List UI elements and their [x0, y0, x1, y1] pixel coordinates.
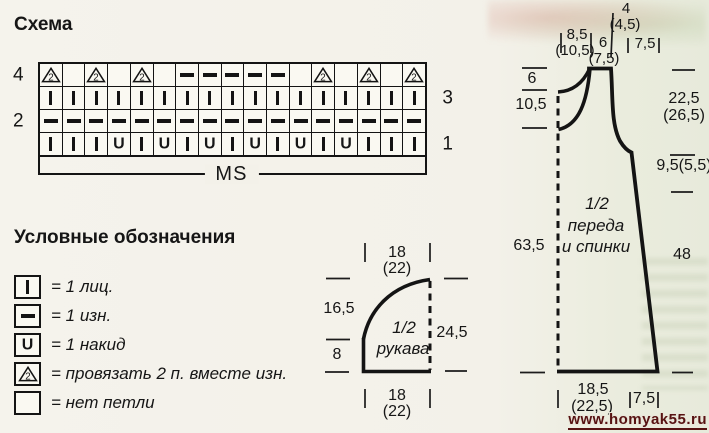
sleeve-piece-label: 1/2	[392, 319, 416, 336]
chart-cell-p	[380, 110, 403, 132]
knit-stitch-symbol	[231, 137, 234, 151]
purl-stitch-symbol	[316, 119, 330, 122]
purl-stitch-symbol	[225, 73, 239, 76]
body-armhole-depth-label: 22,5	[668, 91, 699, 107]
chart-cell-k	[357, 87, 380, 109]
svg-text:2: 2	[25, 371, 30, 382]
svg-text:2: 2	[411, 72, 416, 83]
yarn-over-symbol: U	[295, 137, 307, 153]
chart-cell-k	[153, 87, 176, 109]
chart-cell-p	[84, 110, 107, 132]
chart-cell-yo: U	[289, 133, 312, 155]
sleeve-cap-height-label: 16,5	[323, 301, 354, 317]
knit-stitch-symbol	[367, 137, 370, 151]
chart-cell-k2tog: 2	[40, 64, 62, 86]
body-front-neck-extra-label: 10,5	[515, 97, 546, 113]
chart-cell-p	[289, 110, 312, 132]
body-front-neck-curve	[559, 69, 591, 130]
sleeve-bottom-width-alt-label: (22)	[383, 404, 411, 420]
sleeve-top-width-label: 18	[388, 245, 406, 261]
chart-cell-k	[266, 133, 289, 155]
chart-cell-p	[175, 110, 198, 132]
page: Схема 222222432UUUUUU1 MS Условные обозн…	[0, 0, 709, 433]
chart-cell-k2tog: 2	[357, 64, 380, 86]
purl-stitch-symbol	[44, 119, 58, 122]
purl-stitch-symbol	[362, 119, 376, 122]
yarn-over-symbol: U	[249, 137, 261, 153]
body-flare-label: 7,5	[633, 391, 655, 407]
chart-cell-k	[289, 87, 312, 109]
sleeve-top-width-alt-label: (22)	[383, 261, 411, 277]
chart-cell-p	[266, 64, 289, 86]
legend-item-text: = 1 накид	[51, 335, 126, 355]
chart-cell-p	[153, 110, 176, 132]
svg-text:2: 2	[94, 72, 99, 83]
chart-cell-k	[198, 87, 221, 109]
chart-cell-p	[311, 110, 334, 132]
knit-stitch-symbol	[299, 91, 302, 105]
chart-cell-k	[243, 87, 266, 109]
body-armhole-depth-alt-label: (26,5)	[663, 108, 705, 124]
legend-item-text: = 1 изн.	[51, 306, 111, 326]
knit-stitch-symbol	[49, 137, 52, 151]
svg-text:2: 2	[139, 72, 144, 83]
knit-stitch-symbol	[186, 91, 189, 105]
body-length-label: 63,5	[513, 238, 544, 254]
chart-row: 2222224	[40, 64, 425, 86]
sleeve-center-length-label: 24,5	[436, 325, 467, 341]
knit-stitch-symbol	[322, 137, 325, 151]
legend-symbol-box-p	[14, 304, 41, 328]
purl-two-together-symbol: 2	[86, 67, 106, 83]
chart-cell-empty	[334, 64, 357, 86]
knit-stitch-symbol	[26, 280, 29, 294]
chart-cell-k	[62, 133, 85, 155]
purl-stitch-symbol	[384, 119, 398, 122]
purl-stitch-symbol	[225, 119, 239, 122]
chart-cell-p	[198, 110, 221, 132]
chart-cell-empty	[289, 64, 312, 86]
purl-stitch-symbol	[67, 119, 81, 122]
yarn-over-symbol: U	[204, 137, 216, 153]
chart-cell-p	[221, 64, 244, 86]
knit-stitch-symbol	[95, 91, 98, 105]
knit-stitch-symbol	[231, 91, 234, 105]
chart-cell-k	[334, 87, 357, 109]
knit-stitch-symbol	[208, 91, 211, 105]
knit-stitch-symbol	[413, 137, 416, 151]
sleeve-bottom-width-label: 18	[388, 388, 406, 404]
knit-stitch-symbol	[163, 91, 166, 105]
knit-stitch-symbol	[276, 91, 279, 105]
purl-stitch-symbol	[180, 73, 194, 76]
chart-cell-empty	[107, 64, 130, 86]
chart-cell-p	[357, 110, 380, 132]
knit-stitch-symbol	[344, 91, 347, 105]
knit-stitch-symbol	[95, 137, 98, 151]
knit-stitch-symbol	[72, 137, 75, 151]
sleeve-piece-label: рукава	[377, 340, 430, 357]
purl-stitch-symbol	[157, 119, 171, 122]
chart-row-number: 2	[13, 112, 24, 131]
chart-repeat-bracket: MS	[38, 157, 427, 175]
legend-item: = нет петли	[14, 392, 287, 414]
purl-two-together-symbol: 2	[18, 366, 38, 382]
knit-stitch-symbol	[140, 137, 143, 151]
chart-cell-yo: U	[243, 133, 266, 155]
chart-cell-empty	[62, 64, 85, 86]
knit-stitch-symbol	[413, 91, 416, 105]
purl-two-together-symbol: 2	[41, 67, 61, 83]
purl-stitch-symbol	[89, 119, 103, 122]
purl-stitch-symbol	[294, 119, 308, 122]
chart-cell-empty	[380, 64, 403, 86]
chart-cell-k	[357, 133, 380, 155]
chart-cell-k	[311, 87, 334, 109]
chart-cell-k	[175, 87, 198, 109]
chart-cell-k	[40, 87, 62, 109]
legend-item: 2= провязать 2 п. вместе изн.	[14, 363, 287, 385]
purl-stitch-symbol	[271, 119, 285, 122]
body-side-seam-label: 48	[673, 247, 691, 263]
knit-stitch-symbol	[117, 91, 120, 105]
purl-stitch-symbol	[203, 73, 217, 76]
knit-stitch-symbol	[367, 91, 370, 105]
legend-item-text: = нет петли	[51, 393, 155, 413]
purl-two-together-symbol: 2	[404, 67, 424, 83]
chart-title: Схема	[14, 15, 73, 34]
chart-cell-k	[311, 133, 334, 155]
body-strap-width-alt-label: (7,5)	[589, 51, 620, 66]
legend-symbol-box-k	[14, 275, 41, 299]
sleeve-cuff-height-label: 8	[333, 347, 342, 363]
knit-stitch-symbol	[322, 91, 325, 105]
chart-cell-yo: U	[198, 133, 221, 155]
knit-stitch-symbol	[390, 91, 393, 105]
legend-item-text: = 1 лиц.	[51, 277, 113, 297]
chart-cell-yo: U	[107, 133, 130, 155]
chart-row: 3	[40, 86, 425, 109]
knit-stitch-symbol	[390, 137, 393, 151]
chart-row: UUUUUU1	[40, 132, 425, 155]
chart-cell-k	[107, 87, 130, 109]
chart-cell-p	[130, 110, 153, 132]
chart-cell-k	[84, 87, 107, 109]
svg-text:2: 2	[48, 72, 53, 83]
print-showthrough-smudge	[488, 0, 706, 44]
legend-item-text: = провязать 2 п. вместе изн.	[51, 364, 287, 384]
body-piece-label: и спинки	[562, 238, 630, 255]
purl-stitch-symbol	[112, 119, 126, 122]
purl-stitch-symbol	[135, 119, 149, 122]
chart-cell-k	[266, 87, 289, 109]
chart-cell-p	[62, 110, 85, 132]
chart-cell-p	[40, 110, 62, 132]
chart-cell-yo: U	[334, 133, 357, 155]
purl-stitch-symbol	[180, 119, 194, 122]
chart-repeat-label: MS	[204, 164, 258, 184]
purl-stitch-symbol	[248, 119, 262, 122]
body-back-neck-depth-label: 6	[528, 71, 537, 87]
chart-cell-empty	[153, 64, 176, 86]
chart-cell-k2tog: 2	[311, 64, 334, 86]
chart-cell-p	[243, 110, 266, 132]
purl-stitch-symbol	[271, 73, 285, 76]
chart-cell-k	[40, 133, 62, 155]
knit-stitch-symbol	[49, 91, 52, 105]
chart-cell-p	[107, 110, 130, 132]
chart-row-number: 1	[442, 135, 453, 154]
chart-cell-p	[334, 110, 357, 132]
svg-text:2: 2	[366, 72, 371, 83]
chart-cell-p	[243, 64, 266, 86]
site-watermark: www.homyak55.ru	[568, 411, 707, 430]
body-underarm-label: 9,5(5,5)	[656, 158, 709, 174]
chart-cell-k2tog: 2	[130, 64, 153, 86]
chart-row-number: 3	[442, 89, 453, 108]
purl-two-together-symbol: 2	[359, 67, 379, 83]
chart-cell-k	[221, 87, 244, 109]
body-piece-label: 1/2	[585, 195, 609, 212]
legend-item: = 1 изн.	[14, 305, 287, 327]
chart-cell-k	[221, 133, 244, 155]
chart-cell-k	[62, 87, 85, 109]
body-neck-width-label: 8,5	[567, 27, 588, 42]
body-strap-width-label: 6	[599, 35, 607, 50]
yarn-over-symbol: U	[113, 137, 125, 153]
chart-cell-k	[130, 133, 153, 155]
chart-cell-p	[198, 64, 221, 86]
legend-item: = 1 лиц.	[14, 276, 287, 298]
body-shoulder-label: 4	[622, 1, 630, 16]
purl-stitch-symbol	[203, 119, 217, 122]
body-shoulder-alt-label: (4,5)	[610, 17, 641, 32]
chart-cell-k	[130, 87, 153, 109]
purl-two-together-symbol: 2	[132, 67, 152, 83]
print-showthrough-smudge	[642, 258, 708, 390]
knit-stitch-symbol	[140, 91, 143, 105]
purl-stitch-symbol	[407, 119, 421, 122]
yarn-over-symbol: U	[22, 338, 34, 354]
chart-cell-p	[266, 110, 289, 132]
knit-stitch-symbol	[72, 91, 75, 105]
chart-cell-yo: U	[153, 133, 176, 155]
purl-stitch-symbol	[339, 119, 353, 122]
yarn-over-symbol: U	[159, 137, 171, 153]
purl-stitch-symbol	[21, 314, 35, 317]
body-armhole-inset-label: 7,5	[635, 36, 656, 51]
body-piece-label: переда	[568, 217, 624, 234]
legend-item: U= 1 накид	[14, 334, 287, 356]
purl-stitch-symbol	[248, 73, 262, 76]
chart-row-number: 4	[13, 66, 24, 85]
knit-chart-grid: 222222432UUUUUU1	[38, 62, 427, 157]
body-back-neck-curve	[558, 69, 590, 92]
legend-symbol-box-yo: U	[14, 333, 41, 357]
chart-cell-k	[380, 87, 403, 109]
chart-cell-k	[402, 87, 425, 109]
legend-title: Условные обозначения	[14, 228, 235, 247]
chart-row: 2	[40, 109, 425, 132]
knit-stitch-symbol	[186, 137, 189, 151]
chart-cell-k	[402, 133, 425, 155]
chart-cell-k	[84, 133, 107, 155]
legend-symbol-box-none	[14, 391, 41, 415]
chart-cell-p	[175, 64, 198, 86]
chart-cell-k	[380, 133, 403, 155]
legend-list: = 1 лиц.= 1 изн.U= 1 накид2= провязать 2…	[14, 276, 287, 421]
chart-cell-k2tog: 2	[402, 64, 425, 86]
chart-cell-p	[221, 110, 244, 132]
knit-stitch-symbol	[254, 91, 257, 105]
chart-cell-k	[175, 133, 198, 155]
body-hem-width-label: 18,5	[577, 382, 608, 398]
legend-symbol-box-k2tog: 2	[14, 362, 41, 386]
chart-cell-k2tog: 2	[84, 64, 107, 86]
knit-stitch-symbol	[276, 137, 279, 151]
yarn-over-symbol: U	[340, 137, 352, 153]
chart-cell-p	[402, 110, 425, 132]
svg-text:2: 2	[321, 72, 326, 83]
purl-two-together-symbol: 2	[313, 67, 333, 83]
